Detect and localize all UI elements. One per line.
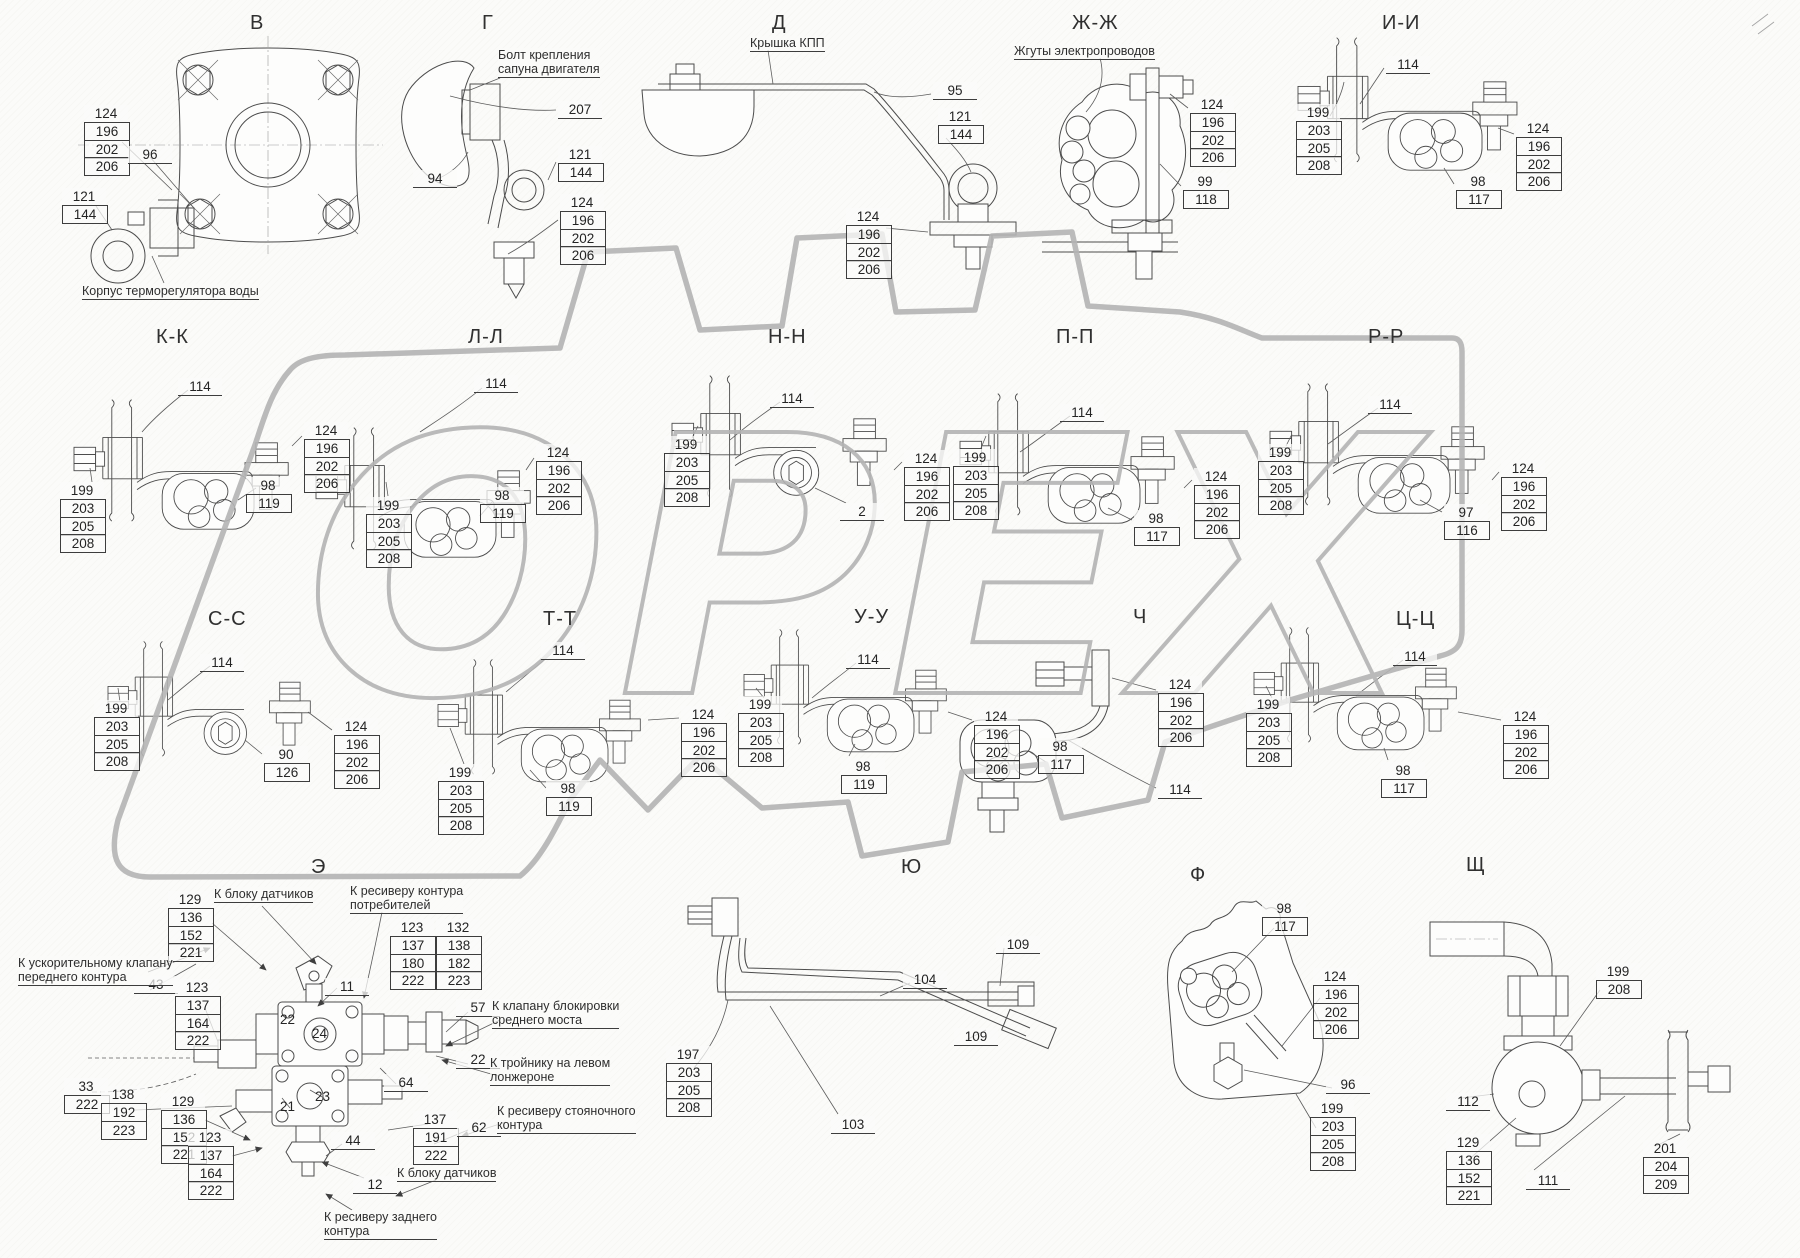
part-callout: 199203205208	[664, 436, 710, 507]
part-number: 206	[1158, 728, 1204, 747]
part-callout: 129136152221	[168, 891, 214, 962]
annotation: К ресиверу стояночногоконтура	[497, 1104, 636, 1134]
part-number: 199	[738, 696, 782, 714]
part-callout: 96	[128, 146, 172, 164]
annotation: К ресиверу контурапотребителей	[350, 884, 463, 914]
part-number: 223	[436, 971, 482, 990]
part-number: 117	[1262, 917, 1308, 936]
annotation: Жгуты электропроводов	[1014, 44, 1155, 60]
part-number: 98	[841, 758, 885, 776]
part-callout: 62	[457, 1119, 501, 1137]
part-number: 199	[664, 436, 708, 454]
part-number: 123	[390, 919, 434, 937]
part-number: 124	[1516, 120, 1560, 138]
part-number: 208	[664, 488, 710, 507]
part-number: 97	[1444, 504, 1488, 522]
part-callout: 114	[178, 378, 222, 396]
part-number: 203	[666, 1063, 712, 1082]
part-number: 199	[94, 700, 138, 718]
part-number: 196	[1158, 693, 1204, 712]
part-callout: 112	[1446, 1093, 1490, 1111]
part-number: 205	[438, 799, 484, 818]
part-number: 123	[175, 979, 219, 997]
annotation: К тройнику на левомлонжероне	[490, 1056, 610, 1086]
part-number: 180	[390, 954, 436, 973]
section-title-r: Р-Р	[1368, 326, 1404, 349]
part-number: 136	[1446, 1151, 1492, 1170]
part-number: 164	[188, 1164, 234, 1183]
part-number: 114	[770, 390, 814, 408]
annotation: К блоку датчиков	[214, 887, 313, 903]
part-number: 203	[1296, 121, 1342, 140]
part-number: 2	[840, 503, 884, 521]
part-number: 12	[353, 1176, 397, 1194]
part-number: 205	[953, 484, 999, 503]
part-number: 222	[175, 1031, 221, 1050]
part-callout: 12	[353, 1176, 397, 1194]
part-number: 196	[846, 225, 892, 244]
part-number: 132	[436, 919, 480, 937]
part-number: 90	[264, 746, 308, 764]
part-number: 199	[1258, 444, 1302, 462]
section-title-zh: Ж-Ж	[1072, 12, 1119, 35]
part-callout: 124196202206	[681, 706, 727, 777]
part-callout: 44	[331, 1132, 375, 1150]
part-number: 129	[168, 891, 212, 909]
part-number: 203	[366, 514, 412, 533]
part-number: 44	[331, 1132, 375, 1150]
part-callout: 197203205208	[666, 1046, 712, 1117]
part-number: 114	[1386, 56, 1430, 74]
section-title-s: С-С	[208, 608, 247, 631]
part-number: 124	[1190, 96, 1234, 114]
part-number: 114	[846, 651, 890, 669]
part-callout: 124196202206	[904, 450, 950, 521]
part-number: 205	[1310, 1135, 1356, 1154]
part-callout: 124196202206	[1190, 96, 1236, 167]
part-number: 196	[904, 467, 950, 486]
part-number: 124	[1503, 708, 1547, 726]
annotation-line: сапуна двигателя	[498, 62, 600, 76]
part-number: 114	[1393, 648, 1437, 666]
part-number: 197	[666, 1046, 710, 1064]
part-number: 196	[1194, 485, 1240, 504]
part-number: 206	[334, 770, 380, 789]
annotation: К блоку датчиков	[397, 1166, 496, 1182]
annotation-line: Болт крепления	[498, 48, 600, 62]
annotation: Крышка КПП	[750, 36, 825, 52]
part-callout: 98119	[546, 780, 592, 816]
part-number: 205	[94, 735, 140, 754]
part-number: 206	[1313, 1020, 1359, 1039]
part-callout: 114	[1393, 648, 1437, 666]
annotation-line: Крышка КПП	[750, 36, 825, 50]
part-number: 121	[62, 188, 106, 206]
part-number: 64	[384, 1074, 428, 1092]
part-number: 206	[1194, 520, 1240, 539]
part-number: 136	[161, 1110, 207, 1129]
part-number: 109	[954, 1028, 998, 1046]
part-callout: 94	[413, 170, 457, 188]
part-number: 196	[1501, 477, 1547, 496]
labels-layer: В12419620220696121144Корпус терморегулят…	[0, 0, 1800, 1258]
part-number: 96	[1326, 1076, 1370, 1094]
part-number: 202	[846, 243, 892, 262]
part-number: 98	[1456, 173, 1500, 191]
part-callout: 124196202206	[334, 718, 380, 789]
part-number: 164	[175, 1014, 221, 1033]
annotation-line: потребителей	[350, 898, 463, 912]
part-number: 196	[304, 439, 350, 458]
part-number: 206	[536, 496, 582, 515]
part-number: 137	[188, 1146, 234, 1165]
part-callout: 114	[846, 651, 890, 669]
part-callout: 124196202206	[1501, 460, 1547, 531]
part-number: 199	[1596, 963, 1640, 981]
part-number: 196	[1190, 113, 1236, 132]
part-callout: 114	[541, 642, 585, 660]
part-number: 222	[188, 1181, 234, 1200]
part-number: 202	[1190, 131, 1236, 150]
part-number: 98	[1038, 738, 1082, 756]
part-callout: 114	[1386, 56, 1430, 74]
part-callout: 121144	[62, 188, 108, 224]
part-number: 119	[841, 775, 887, 794]
annotation-line: среднего моста	[492, 1013, 619, 1027]
part-callout: 124196202206	[1158, 676, 1204, 747]
part-number: 124	[84, 105, 128, 123]
section-title-t: Т-Т	[543, 608, 577, 631]
part-number: 137	[390, 936, 436, 955]
part-number-inline: 22	[280, 1012, 295, 1027]
part-number: 209	[1643, 1175, 1689, 1194]
part-number: 114	[541, 642, 585, 660]
part-number: 196	[1503, 725, 1549, 744]
part-callout: 121144	[558, 146, 604, 182]
part-number: 121	[558, 146, 602, 164]
part-number: 117	[1381, 779, 1427, 798]
part-number: 208	[438, 816, 484, 835]
part-callout: 199203205208	[1310, 1100, 1356, 1171]
part-number: 203	[1310, 1117, 1356, 1136]
part-number: 182	[436, 954, 482, 973]
part-number: 98	[480, 487, 524, 505]
part-number: 202	[1313, 1003, 1359, 1022]
part-number: 202	[1158, 711, 1204, 730]
part-callout: 199208	[1596, 963, 1642, 999]
section-title-v: В	[250, 12, 264, 35]
section-title-u: У-У	[854, 606, 889, 629]
part-number: 121	[938, 108, 982, 126]
part-number: 202	[304, 457, 350, 476]
part-number: 129	[161, 1093, 205, 1111]
part-number: 126	[264, 763, 310, 782]
part-number: 104	[903, 971, 947, 989]
part-number: 203	[438, 781, 484, 800]
annotation: Болт креплениясапуна двигателя	[498, 48, 600, 78]
part-number: 196	[84, 122, 130, 141]
part-number: 199	[1310, 1100, 1354, 1118]
part-number: 222	[390, 971, 436, 990]
annotation-line: Корпус терморегулятора воды	[82, 284, 259, 298]
part-number: 136	[168, 908, 214, 927]
part-number: 202	[681, 741, 727, 760]
part-callout: 129136152221	[1446, 1134, 1492, 1205]
part-number: 202	[560, 229, 606, 248]
part-callout: 199203205208	[366, 497, 412, 568]
part-number: 124	[1194, 468, 1238, 486]
part-number: 96	[128, 146, 172, 164]
annotation-line: контура	[497, 1118, 636, 1132]
part-number: 203	[60, 499, 106, 518]
part-callout: 114	[770, 390, 814, 408]
part-number: 119	[246, 494, 292, 513]
part-number: 129	[1446, 1134, 1490, 1152]
part-number: 202	[1516, 155, 1562, 174]
part-callout: 114	[1060, 404, 1104, 422]
annotation-line: К ресиверу стояночного	[497, 1104, 636, 1118]
part-callout: 95	[933, 82, 977, 100]
part-callout: 124196202206	[846, 208, 892, 279]
part-number: 114	[474, 375, 518, 393]
part-number: 98	[246, 477, 290, 495]
part-callout: 207	[558, 101, 602, 119]
part-number: 199	[953, 449, 997, 467]
part-number: 114	[178, 378, 222, 396]
part-callout: 109	[996, 936, 1040, 954]
part-number: 124	[1313, 968, 1357, 986]
part-callout: 199203205208	[1296, 104, 1342, 175]
part-number: 208	[366, 549, 412, 568]
part-callout: 124196202206	[84, 105, 130, 176]
part-number: 203	[664, 453, 710, 472]
part-number: 196	[681, 723, 727, 742]
part-number: 202	[536, 479, 582, 498]
part-number: 117	[1456, 190, 1502, 209]
part-number: 196	[536, 461, 582, 480]
part-number: 138	[101, 1086, 145, 1104]
part-number: 192	[101, 1103, 147, 1122]
part-number-inline: 24	[312, 1026, 327, 1041]
part-number: 202	[1194, 503, 1240, 522]
part-number: 223	[101, 1121, 147, 1140]
part-callout: 124196202206	[974, 708, 1020, 779]
part-callout: 199203205208	[94, 700, 140, 771]
part-callout: 11	[325, 978, 369, 996]
part-number: 208	[1296, 156, 1342, 175]
part-number: 206	[904, 502, 950, 521]
part-number: 204	[1643, 1157, 1689, 1176]
annotation-line: К ускорительному клапану	[18, 956, 173, 970]
part-number: 206	[560, 246, 606, 265]
part-number: 117	[1038, 755, 1084, 774]
part-callout: 124196202206	[304, 422, 350, 493]
part-number: 124	[846, 208, 890, 226]
part-number: 95	[933, 82, 977, 100]
part-callout: 199203205208	[953, 449, 999, 520]
part-callout: 2	[840, 503, 884, 521]
part-callout: 137191222	[413, 1111, 459, 1165]
part-number: 205	[1296, 139, 1342, 158]
part-number: 124	[304, 422, 348, 440]
part-number: 196	[1516, 137, 1562, 156]
part-number: 109	[996, 936, 1040, 954]
part-callout: 138192223	[101, 1086, 147, 1140]
part-number: 124	[536, 444, 580, 462]
section-title-g: Г	[482, 12, 494, 35]
part-number: 202	[974, 743, 1020, 762]
part-number: 221	[1446, 1186, 1492, 1205]
part-number: 124	[1158, 676, 1202, 694]
part-number: 124	[334, 718, 378, 736]
part-number: 98	[546, 780, 590, 798]
section-title-d: Д	[772, 12, 787, 35]
part-callout: 98117	[1456, 173, 1502, 209]
part-number: 117	[1134, 527, 1180, 546]
part-callout: 123137180222	[390, 919, 436, 990]
part-number: 196	[334, 735, 380, 754]
part-number: 208	[953, 501, 999, 520]
part-number: 103	[831, 1116, 875, 1134]
part-number: 208	[738, 748, 784, 767]
part-callout: 98119	[841, 758, 887, 794]
part-callout: 114	[1158, 781, 1202, 799]
part-callout: 98117	[1262, 900, 1308, 936]
part-number: 206	[1516, 172, 1562, 191]
section-title-f: Ф	[1190, 864, 1206, 887]
annotation-line: лонжероне	[490, 1070, 610, 1084]
part-number: 137	[413, 1111, 457, 1129]
part-number: 152	[1446, 1169, 1492, 1188]
part-number: 205	[1246, 731, 1292, 750]
part-number: 144	[938, 125, 984, 144]
part-callout: 98117	[1038, 738, 1084, 774]
part-callout: 98117	[1381, 762, 1427, 798]
part-number: 94	[413, 170, 457, 188]
annotation: К клапану блокировкисреднего моста	[492, 999, 619, 1029]
part-number: 206	[304, 474, 350, 493]
annotation-line: К блоку датчиков	[397, 1166, 496, 1180]
part-callout: 114	[200, 654, 244, 672]
part-callout: 123137164222	[188, 1129, 234, 1200]
part-callout: 111	[1526, 1172, 1570, 1190]
part-number-inline: 21	[280, 1099, 295, 1114]
part-number: 199	[366, 497, 410, 515]
part-callout: 132138182223	[436, 919, 482, 990]
annotation-line: контура	[324, 1224, 437, 1238]
part-callout: 90126	[264, 746, 310, 782]
section-title-k: К-К	[156, 326, 189, 349]
part-number: 203	[94, 717, 140, 736]
part-number: 202	[334, 753, 380, 772]
part-callout: 124196202206	[1516, 120, 1562, 191]
part-number: 114	[1368, 396, 1412, 414]
part-number: 98	[1381, 762, 1425, 780]
part-callout: 109	[954, 1028, 998, 1046]
part-number: 203	[1246, 713, 1292, 732]
part-callout: 124196202206	[536, 444, 582, 515]
part-number: 98	[1262, 900, 1306, 918]
part-callout: 98119	[246, 477, 292, 513]
part-callout: 97116	[1444, 504, 1490, 540]
part-number: 206	[1501, 512, 1547, 531]
part-callout: 114	[1368, 396, 1412, 414]
part-number: 208	[1310, 1152, 1356, 1171]
annotation: К ускорительному клапанупереднего контур…	[18, 956, 173, 986]
section-title-n: Н-Н	[768, 326, 807, 349]
part-number: 124	[681, 706, 725, 724]
part-number: 206	[84, 157, 130, 176]
annotation: Корпус терморегулятора воды	[82, 284, 259, 300]
part-number: 124	[904, 450, 948, 468]
part-number: 118	[1183, 190, 1229, 209]
part-number: 196	[1313, 985, 1359, 1004]
part-number-inline: 23	[315, 1089, 330, 1104]
part-number: 152	[168, 926, 214, 945]
annotation-line: К блоку датчиков	[214, 887, 313, 901]
section-title-i: И-И	[1382, 12, 1420, 35]
part-number: 114	[1060, 404, 1104, 422]
part-number: 208	[1258, 496, 1304, 515]
part-callout: 199203205208	[1246, 696, 1292, 767]
part-number: 202	[904, 485, 950, 504]
part-number: 206	[846, 260, 892, 279]
part-number: 205	[366, 532, 412, 551]
part-number: 205	[60, 517, 106, 536]
part-number: 111	[1526, 1172, 1570, 1190]
part-callout: 123137164222	[175, 979, 221, 1050]
part-number: 123	[188, 1129, 232, 1147]
part-number: 199	[1246, 696, 1290, 714]
part-number: 203	[1258, 461, 1304, 480]
part-callout: 96	[1326, 1076, 1370, 1094]
part-number: 202	[84, 140, 130, 159]
part-number: 116	[1444, 521, 1490, 540]
part-number: 208	[666, 1098, 712, 1117]
section-title-e: Э	[311, 856, 326, 879]
part-callout: 114	[474, 375, 518, 393]
part-callout: 124196202206	[1313, 968, 1359, 1039]
part-number: 205	[1258, 479, 1304, 498]
part-number: 206	[1190, 148, 1236, 167]
annotation-line: К ресиверу заднего	[324, 1210, 437, 1224]
annotation-line: К клапану блокировки	[492, 999, 619, 1013]
annotation: К ресиверу заднегоконтура	[324, 1210, 437, 1240]
part-number: 196	[560, 211, 606, 230]
part-number: 206	[681, 758, 727, 777]
section-title-shch: Щ	[1466, 854, 1486, 877]
part-number: 199	[60, 482, 104, 500]
annotation-line: Жгуты электропроводов	[1014, 44, 1155, 58]
section-title-ts: Ц-Ц	[1396, 608, 1435, 631]
part-number: 98	[1134, 510, 1178, 528]
annotation-line: К ресиверу контура	[350, 884, 463, 898]
part-number: 144	[62, 205, 108, 224]
part-callout: 199203205208	[1258, 444, 1304, 515]
part-number: 199	[438, 764, 482, 782]
part-number: 124	[1501, 460, 1545, 478]
part-number: 11	[325, 978, 369, 996]
part-number: 221	[168, 943, 214, 962]
part-number: 206	[1503, 760, 1549, 779]
part-number: 208	[60, 534, 106, 553]
part-number: 138	[436, 936, 482, 955]
part-number: 99	[1183, 173, 1227, 191]
part-callout: 124196202206	[560, 194, 606, 265]
part-callout: 201204209	[1643, 1140, 1689, 1194]
part-number: 207	[558, 101, 602, 119]
part-number: 114	[1158, 781, 1202, 799]
